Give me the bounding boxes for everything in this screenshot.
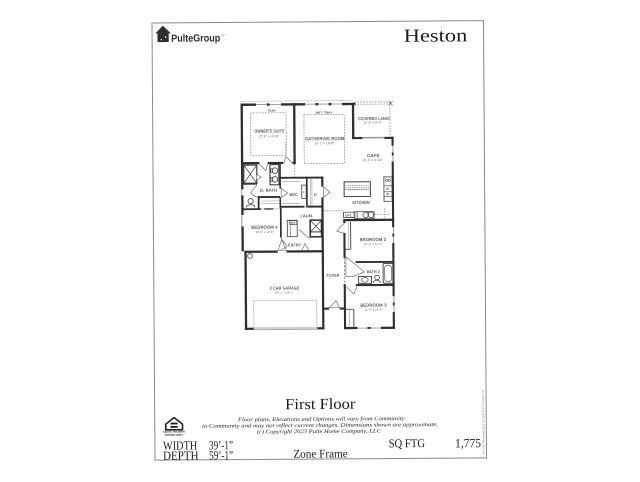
- svg-text:O. BATH: O. BATH: [260, 188, 278, 193]
- svg-text:OWNER'S SUITE: OWNER'S SUITE: [254, 128, 284, 133]
- svg-text:HS 234 The Heston 0223 (c) 202: HS 234 The Heston 0223 (c) 2023 PULTE HO…: [481, 390, 485, 454]
- svg-text:OPPORTUNITY: OPPORTUNITY: [165, 433, 184, 437]
- svg-text:Zone Frame: Zone Frame: [293, 446, 347, 460]
- svg-text:SQ FTG: SQ FTG: [389, 436, 426, 450]
- svg-text:First Floor: First Floor: [285, 396, 355, 413]
- svg-text:LAUN.: LAUN.: [300, 213, 313, 218]
- svg-text:OPT.: OPT.: [345, 213, 352, 217]
- svg-text:Heston: Heston: [404, 26, 468, 46]
- svg-text:TRAY: TRAY: [268, 109, 276, 113]
- svg-text:OPT. TRAY: OPT. TRAY: [316, 111, 332, 115]
- svg-text:BATH 2: BATH 2: [367, 269, 381, 274]
- svg-text:20'-1" x 20'-1": 20'-1" x 20'-1": [275, 290, 294, 294]
- svg-text:10'-4" x 11'-0": 10'-4" x 11'-0": [364, 242, 383, 246]
- svg-text:10'-6" x 11'-6": 10'-6" x 11'-6": [255, 230, 274, 234]
- svg-text:10'-4" x 9'-10": 10'-4" x 9'-10": [363, 158, 383, 162]
- svg-text:15'-1" x 18'-8": 15'-1" x 18'-8": [314, 141, 334, 145]
- svg-text:59’-1”: 59’-1”: [209, 448, 233, 462]
- svg-text:TM: TM: [221, 35, 224, 37]
- svg-text:12'-6" x 15'-6": 12'-6" x 15'-6": [259, 134, 279, 138]
- svg-text:ENTRY: ENTRY: [288, 242, 301, 247]
- svg-text:KITCHEN: KITCHEN: [352, 200, 369, 205]
- svg-text:P: P: [314, 192, 317, 197]
- svg-text:FOYER: FOYER: [327, 273, 340, 278]
- svg-text:PulteGroup: PulteGroup: [171, 33, 220, 44]
- svg-text:DEPTH: DEPTH: [163, 449, 199, 463]
- svg-text:15'-0" x 8'-0": 15'-0" x 8'-0": [363, 120, 381, 124]
- svg-text:1,775: 1,775: [455, 436, 481, 450]
- svg-text:(c) Copyright 2023 Pulte Home: (c) Copyright 2023 Pulte Home Company, L…: [257, 428, 381, 436]
- svg-text:11'-4" x 11'-0": 11'-4" x 11'-0": [364, 308, 382, 312]
- svg-text:OPT.: OPT.: [290, 222, 296, 225]
- svg-text:WIC: WIC: [289, 192, 298, 197]
